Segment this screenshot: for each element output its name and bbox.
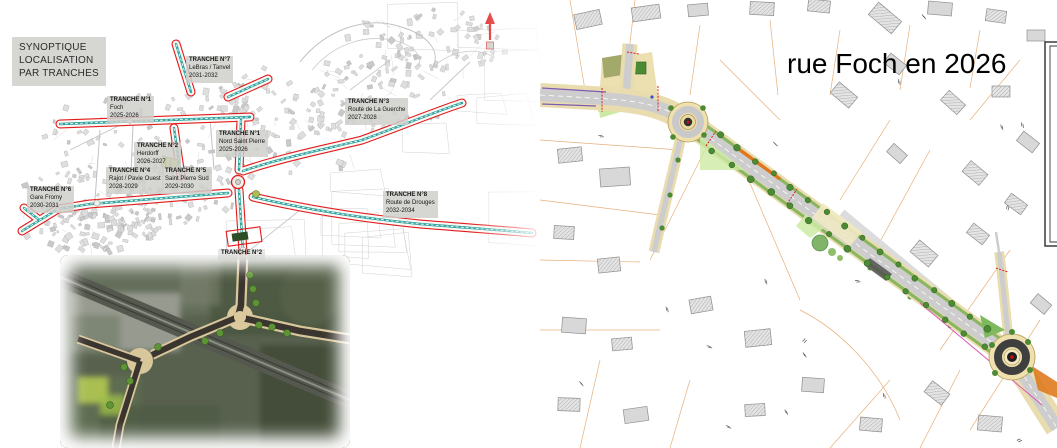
tranche-label-2-small: TRANCHE N°2 [218,249,265,260]
plan-panel: rue Foch en 2026 [540,0,1057,448]
roundabout-1 [668,102,708,142]
aerial-photo-inset [60,255,350,448]
tranche-label-7: TRANCHE N°7LeBras / Tanvel2031-2032 [186,56,233,83]
tranche-label-6: TRANCHE N°6Gare Fromy2030-2031 [27,186,74,213]
tranche-label-1-foch: TRANCHE N°1Foch2025-2026 [107,96,154,123]
tranche-label-1-nord-saint-pierre: TRANCHE N°1Nord Saint Pierre2025-2026 [216,130,268,157]
sheet-border [1045,42,1057,246]
synoptic-map-panel: SYNOPTIQUE LOCALISATION PAR TRANCHES TRA… [0,0,540,448]
tranche-label-5: TRANCHE N°5Saint Pierre Sud2029-2030 [162,167,212,194]
plan-title: rue Foch en 2026 [787,48,1007,80]
tranche-label-8: TRANCHE N°8Route de Drouges2032-2034 [383,191,438,218]
aerial-photo [60,255,350,448]
tranche-label-2-herdorff: TRANCHE N°2Herdorff2026-2027 [134,142,181,169]
tranche-label-3: TRANCHE N°3Route de La Guerche2027-2028 [345,98,408,125]
map-title: SYNOPTIQUE LOCALISATION PAR TRANCHES [12,37,106,86]
figure-canvas: SYNOPTIQUE LOCALISATION PAR TRANCHES TRA… [0,0,1057,448]
north-arrow-icon [485,12,495,49]
tranche-label-4: TRANCHE N°4Rajot / Pavie Ouest2028-2029 [106,167,164,194]
crosswalk-marks [602,52,1008,272]
